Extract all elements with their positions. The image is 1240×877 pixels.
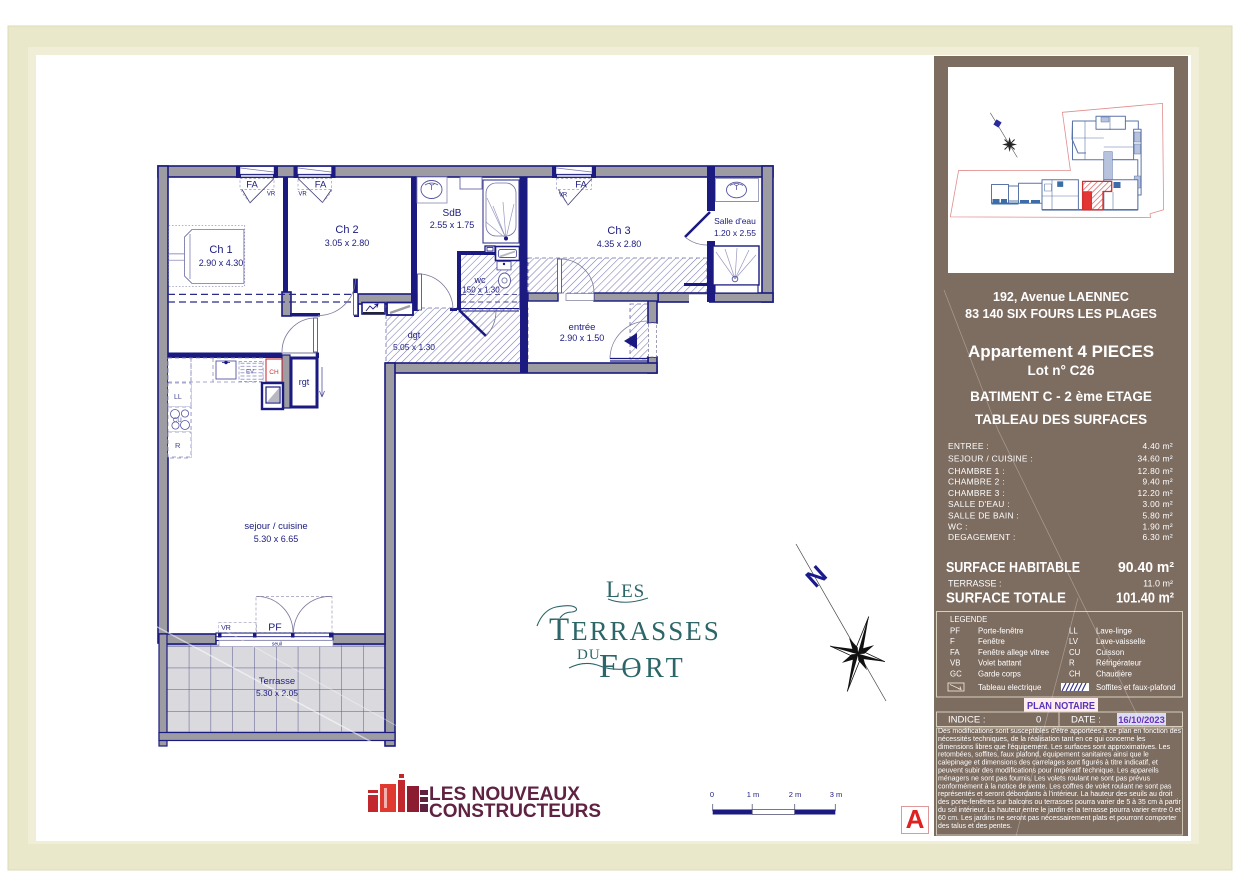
svg-text:du sol intérieur. La hauteur e: du sol intérieur. La hauteur entre le ja… [938, 807, 1181, 814]
svg-text:conformément à la notice de ve: conformément à la notice de vente. Les c… [938, 783, 1172, 790]
svg-text:des porte-fenêtres sur balcons: des porte-fenêtres sur balcons ou terras… [938, 799, 1181, 806]
svg-text:CHAMBRE 1 :: CHAMBRE 1 : [948, 466, 1005, 476]
svg-text:FA: FA [315, 180, 327, 191]
svg-text:12.80 m²: 12.80 m² [1138, 466, 1173, 476]
svg-text:ENTREE :: ENTREE : [948, 441, 989, 451]
svg-text:SALLE DE BAIN :: SALLE DE BAIN : [948, 510, 1019, 520]
svg-text:R: R [175, 441, 181, 450]
svg-text:R: R [1069, 659, 1075, 668]
svg-text:83 140 SIX FOURS LES PLAGES: 83 140 SIX FOURS LES PLAGES [965, 307, 1157, 321]
svg-text:Salle d'eau: Salle d'eau [714, 216, 756, 226]
svg-text:3.05 x 2.80: 3.05 x 2.80 [325, 238, 370, 248]
svg-text:entrée: entrée [569, 322, 596, 333]
svg-text:Volet battant: Volet battant [978, 659, 1022, 668]
svg-text:TABLEAU DES SURFACES: TABLEAU DES SURFACES [975, 412, 1147, 427]
svg-text:peuvent subir des modification: peuvent subir des modifications pour imp… [938, 768, 1159, 775]
svg-text:Fenêtre: Fenêtre [978, 637, 1005, 646]
svg-text:Terrasse: Terrasse [259, 676, 295, 687]
svg-text:150 x 1.30: 150 x 1.30 [462, 286, 500, 295]
svg-text:1.90 m²: 1.90 m² [1143, 522, 1174, 532]
svg-text:WC :: WC : [948, 522, 968, 532]
svg-text:sejour / cuisine: sejour / cuisine [244, 521, 307, 532]
svg-text:FA: FA [575, 180, 587, 191]
svg-text:Soffites et faux-plafond: Soffites et faux-plafond [1096, 683, 1176, 692]
svg-text:F: F [950, 637, 955, 646]
svg-text:Chaudière: Chaudière [1096, 669, 1132, 678]
svg-text:A: A [906, 804, 925, 834]
svg-text:101.40 m²: 101.40 m² [1116, 591, 1174, 607]
svg-text:TERRASSES: TERRASSES [549, 612, 721, 648]
svg-text:FA: FA [950, 648, 960, 657]
svg-text:Lave-linge: Lave-linge [1096, 627, 1132, 636]
svg-text:Ch 1: Ch 1 [209, 244, 232, 256]
svg-text:calepinage et dimensions des c: calepinage et dimensions des carrelages … [938, 760, 1158, 767]
svg-text:Porte-fenêtre: Porte-fenêtre [978, 627, 1024, 636]
svg-text:2.55 x 1.75: 2.55 x 1.75 [430, 220, 475, 230]
svg-text:DU: DU [577, 647, 601, 663]
svg-text:EV: EV [246, 370, 254, 376]
svg-text:Garde corps: Garde corps [978, 669, 1021, 678]
svg-text:INDICE :: INDICE : [948, 715, 985, 726]
svg-text:wc: wc [474, 275, 486, 285]
svg-text:CH: CH [1069, 669, 1080, 678]
svg-text:BATIMENT C - 2 ème ETAGE: BATIMENT C - 2 ème ETAGE [970, 389, 1152, 404]
svg-text:VR: VR [559, 193, 568, 199]
svg-text:CHAMBRE 2 :: CHAMBRE 2 : [948, 477, 1005, 487]
svg-text:FA: FA [246, 180, 258, 191]
svg-text:PLAN NOTAIRE: PLAN NOTAIRE [1027, 700, 1095, 712]
svg-text:DEGAGEMENT :: DEGAGEMENT : [948, 532, 1016, 542]
svg-text:VB: VB [950, 659, 960, 668]
svg-text:1.20 x 2.55: 1.20 x 2.55 [714, 228, 756, 238]
svg-text:0: 0 [710, 790, 714, 799]
svg-text:seuil: seuil [272, 642, 282, 648]
svg-text:4.35 x 2.80: 4.35 x 2.80 [597, 239, 642, 249]
svg-text:FORT: FORT [599, 648, 686, 685]
svg-text:90.40 m²: 90.40 m² [1118, 560, 1174, 576]
svg-text:GC: GC [950, 669, 962, 678]
svg-text:2 m: 2 m [789, 790, 802, 799]
svg-text:CONSTRUCTEURS: CONSTRUCTEURS [429, 801, 601, 822]
svg-text:CU: CU [173, 418, 182, 424]
svg-text:dimensions libres que l'équipe: dimensions libres que l'équipement. Les … [938, 744, 1171, 751]
svg-text:60 cm. Les jardins ne seront p: 60 cm. Les jardins ne seront pas nécessa… [938, 815, 1177, 822]
svg-text:4.40 m²: 4.40 m² [1143, 441, 1174, 451]
svg-text:LES: LES [606, 577, 645, 602]
svg-text:Ch 2: Ch 2 [335, 224, 358, 236]
svg-text:2.90 x 1.50: 2.90 x 1.50 [560, 333, 605, 343]
svg-text:Des modifications sont suscept: Des modifications sont susceptibles d'êt… [938, 728, 1181, 735]
svg-text:VR: VR [267, 192, 276, 198]
svg-text:retombées, soffites, faux plaf: retombées, soffites, faux plafond, équip… [938, 752, 1149, 759]
svg-text:Cuisson: Cuisson [1096, 648, 1124, 657]
svg-text:5.30 x 6.65: 5.30 x 6.65 [254, 534, 299, 544]
svg-text:0: 0 [1036, 715, 1041, 726]
svg-text:Appartement 4 PIECES: Appartement 4 PIECES [968, 342, 1154, 361]
svg-text:LL: LL [174, 394, 182, 401]
svg-text:192, Avenue LAENNEC: 192, Avenue LAENNEC [993, 290, 1129, 304]
svg-text:TERRASSE :: TERRASSE : [948, 579, 1002, 589]
svg-text:6.30 m²: 6.30 m² [1143, 532, 1174, 542]
svg-text:Lave-vaisselle: Lave-vaisselle [1096, 637, 1145, 646]
svg-text:34.60 m²: 34.60 m² [1138, 454, 1173, 464]
svg-text:SdB: SdB [443, 208, 462, 219]
svg-text:9.40 m²: 9.40 m² [1143, 477, 1174, 487]
svg-text:Ch 3: Ch 3 [607, 225, 630, 237]
svg-text:rgt: rgt [299, 377, 310, 387]
svg-text:5.30 x 2.05: 5.30 x 2.05 [256, 688, 298, 698]
svg-text:ménagers ne sont pas fournis.: ménagers ne sont pas fournis. Les volets… [938, 775, 1151, 782]
svg-text:5.05 x 1.30: 5.05 x 1.30 [393, 342, 435, 352]
svg-text:VR: VR [298, 192, 307, 198]
svg-text:SURFACE TOTALE: SURFACE TOTALE [946, 591, 1066, 607]
svg-text:SEJOUR / CUISINE :: SEJOUR / CUISINE : [948, 454, 1033, 464]
svg-text:3 m: 3 m [830, 790, 843, 799]
svg-text:PF: PF [950, 627, 960, 636]
svg-text:PF: PF [268, 622, 281, 634]
svg-text:11.0 m²: 11.0 m² [1143, 579, 1173, 589]
svg-text:SALLE D'EAU :: SALLE D'EAU : [948, 499, 1010, 509]
svg-text:SURFACE HABITABLE: SURFACE HABITABLE [946, 560, 1080, 576]
svg-text:LEGENDE: LEGENDE [950, 615, 987, 624]
svg-text:DATE :: DATE : [1071, 715, 1101, 726]
svg-text:dgt: dgt [408, 330, 421, 340]
svg-text:LV: LV [1069, 637, 1079, 646]
svg-text:des talus et des pentes.: des talus et des pentes. [938, 823, 1012, 830]
svg-text:CHAMBRE 3 :: CHAMBRE 3 : [948, 488, 1005, 498]
svg-text:CU: CU [1069, 648, 1081, 657]
svg-text:12.20 m²: 12.20 m² [1138, 488, 1173, 498]
svg-text:CH: CH [269, 369, 279, 376]
svg-text:1 m: 1 m [747, 790, 760, 799]
svg-text:Fenêtre allege vitree: Fenêtre allege vitree [978, 648, 1049, 657]
svg-text:Lot n° C26: Lot n° C26 [1028, 363, 1095, 378]
svg-text:5.80 m²: 5.80 m² [1143, 510, 1174, 520]
svg-text:3.00 m²: 3.00 m² [1143, 499, 1174, 509]
svg-text:représentés et seront débordan: représentés et seront débordants à l'int… [938, 791, 1172, 798]
svg-text:Tableau electrique: Tableau electrique [978, 683, 1041, 692]
svg-text:Réfrigérateur: Réfrigérateur [1096, 659, 1142, 668]
svg-text:2.90 x 4.30: 2.90 x 4.30 [199, 258, 244, 268]
